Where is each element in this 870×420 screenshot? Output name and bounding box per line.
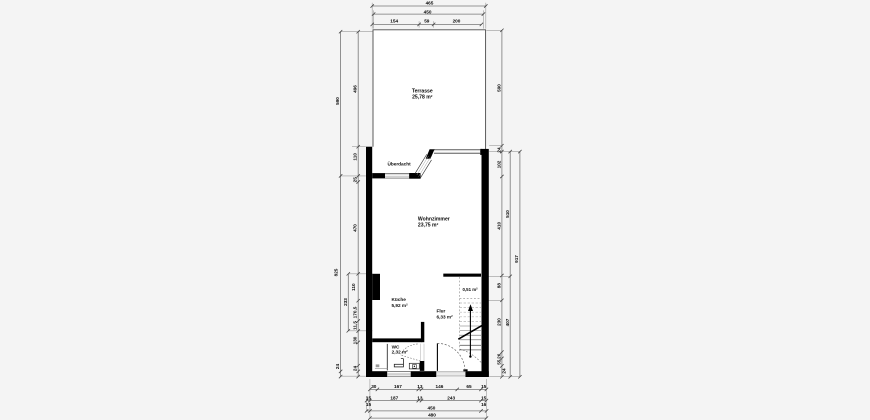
svg-text:Überdacht: Überdacht — [388, 161, 412, 167]
svg-text:110: 110 — [351, 283, 356, 291]
svg-text:450: 450 — [427, 406, 435, 411]
svg-text:187: 187 — [390, 395, 398, 400]
svg-text:30: 30 — [371, 384, 377, 389]
svg-text:24: 24 — [502, 368, 507, 374]
svg-text:450: 450 — [424, 9, 432, 14]
svg-text:15: 15 — [366, 395, 372, 400]
svg-text:2,32 m²: 2,32 m² — [392, 350, 409, 355]
svg-text:407: 407 — [505, 318, 510, 326]
svg-text:25: 25 — [353, 177, 358, 183]
svg-text:55: 55 — [496, 359, 501, 365]
svg-text:243: 243 — [447, 395, 455, 400]
svg-text:0,51 m²: 0,51 m² — [463, 287, 479, 292]
svg-text:15: 15 — [366, 402, 372, 407]
svg-text:590: 590 — [496, 84, 501, 92]
svg-text:470: 470 — [353, 224, 358, 232]
svg-text:480: 480 — [428, 412, 436, 417]
svg-text:110: 110 — [353, 153, 358, 161]
svg-text:496: 496 — [353, 85, 358, 93]
svg-text:24: 24 — [496, 147, 501, 153]
svg-text:825: 825 — [334, 268, 339, 276]
svg-text:Flur: Flur — [437, 309, 446, 314]
svg-text:59: 59 — [424, 18, 430, 23]
svg-text:65: 65 — [466, 384, 472, 389]
svg-text:590: 590 — [335, 97, 340, 105]
svg-text:Küche: Küche — [392, 297, 407, 302]
svg-text:15: 15 — [481, 384, 487, 389]
svg-text:167: 167 — [394, 384, 402, 389]
svg-text:24: 24 — [335, 364, 340, 370]
svg-text:170,5: 170,5 — [353, 306, 358, 318]
svg-text:154: 154 — [390, 18, 398, 23]
svg-text:25,78 m²: 25,78 m² — [412, 94, 433, 100]
svg-text:15: 15 — [481, 395, 487, 400]
svg-text:410: 410 — [496, 222, 501, 230]
svg-text:16: 16 — [481, 402, 487, 407]
svg-text:200: 200 — [453, 18, 461, 23]
svg-text:146: 146 — [435, 384, 443, 389]
svg-text:233: 233 — [343, 298, 348, 306]
svg-text:130: 130 — [353, 336, 358, 344]
svg-text:24: 24 — [353, 366, 358, 372]
svg-text:917: 917 — [514, 255, 519, 263]
svg-text:230: 230 — [496, 318, 501, 326]
svg-text:26: 26 — [496, 353, 501, 359]
svg-text:510: 510 — [505, 210, 510, 218]
svg-text:102: 102 — [496, 160, 501, 168]
svg-text:23,75 m²: 23,75 m² — [418, 222, 439, 228]
svg-text:5,92 m²: 5,92 m² — [392, 303, 409, 308]
svg-text:13: 13 — [417, 395, 423, 400]
svg-text:6,33 m²: 6,33 m² — [437, 314, 454, 319]
svg-text:88: 88 — [496, 283, 501, 289]
svg-text:11,5: 11,5 — [353, 321, 358, 330]
svg-text:465: 465 — [426, 0, 434, 5]
svg-text:13: 13 — [417, 384, 423, 389]
